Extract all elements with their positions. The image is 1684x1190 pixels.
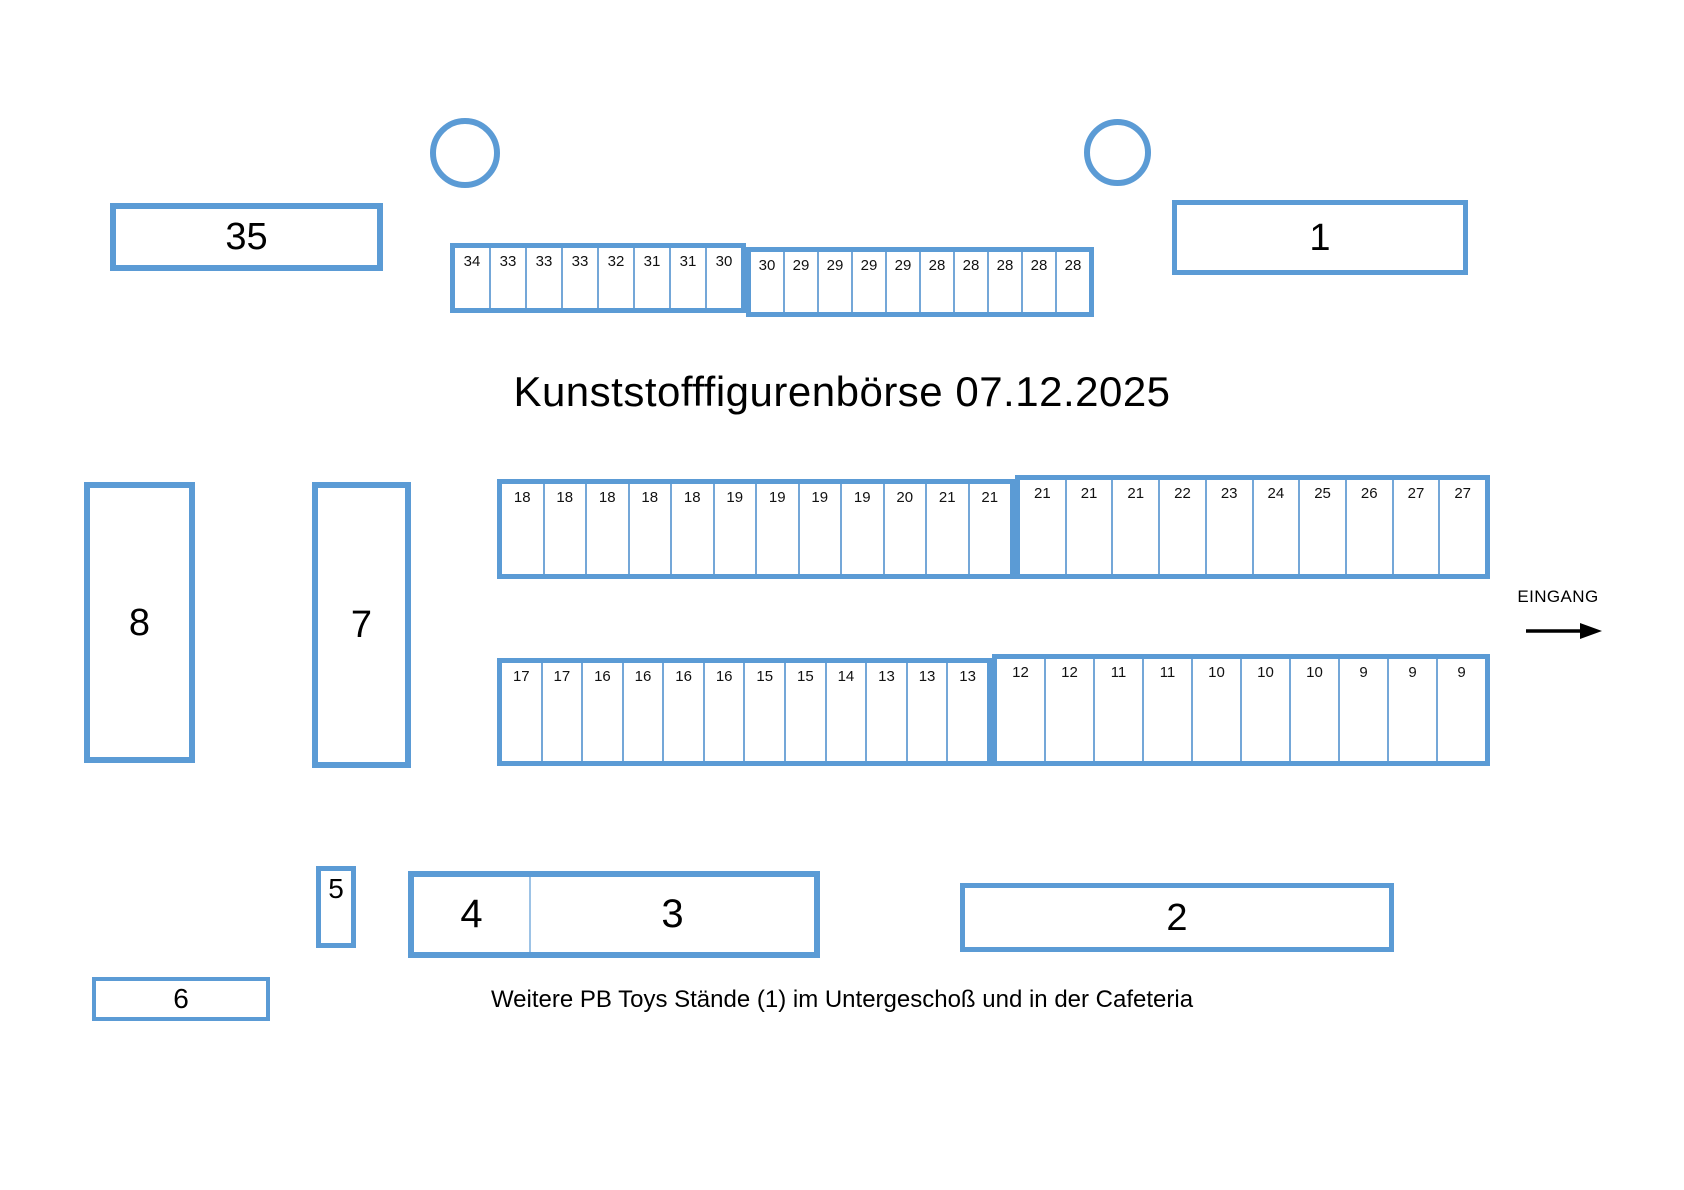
stand-row-top-group-2: 30292929292828282828 [746,247,1094,317]
stand-cell-33: 33 [491,248,527,308]
stand-cell-17: 17 [543,663,584,761]
booth-5-label: 5 [328,871,344,903]
stand-cell-28: 28 [989,252,1023,312]
booth-4-3: 4 3 [408,871,820,958]
booth-4-label: 4 [460,892,482,937]
booth-7: 7 [312,482,411,768]
stand-cell-10: 10 [1193,659,1242,761]
stand-cell-18: 18 [545,484,588,574]
stand-cell-29: 29 [785,252,819,312]
booth-35: 35 [110,203,383,271]
stand-cell-33: 33 [527,248,563,308]
booth-2-label: 2 [1166,899,1187,937]
stand-cell-28: 28 [1023,252,1057,312]
booth-2: 2 [960,883,1394,952]
booth-3-label: 3 [661,892,683,937]
stand-cell-22: 22 [1160,480,1207,574]
stand-row-upper-group-2: 21212122232425262727 [1015,475,1490,579]
booth-8-label: 8 [129,604,150,642]
stand-cell-30: 30 [751,252,785,312]
stand-cell-28: 28 [955,252,989,312]
stand-row-upper-group-1: 181818181819191919202121 [497,479,1015,579]
stand-cell-21: 21 [1067,480,1114,574]
stand-cell-27: 27 [1440,480,1485,574]
stand-cell-20: 20 [885,484,928,574]
stand-cell-9: 9 [1340,659,1389,761]
stand-cell-21: 21 [1020,480,1067,574]
stand-cell-12: 12 [1046,659,1095,761]
stand-cell-34: 34 [455,248,491,308]
stand-cell-25: 25 [1300,480,1347,574]
entrance-arrow-icon [1524,617,1604,645]
stand-cell-21: 21 [927,484,970,574]
stand-cell-14: 14 [827,663,868,761]
stand-cell-18: 18 [587,484,630,574]
stand-cell-32: 32 [599,248,635,308]
booth-4: 4 [414,877,531,952]
stand-cell-13: 13 [948,663,987,761]
stand-cell-33: 33 [563,248,599,308]
stand-cell-18: 18 [672,484,715,574]
stand-cell-27: 27 [1394,480,1441,574]
booth-35-label: 35 [225,218,267,256]
booth-8: 8 [84,482,195,763]
stand-cell-31: 31 [635,248,671,308]
stand-row-lower-group-1: 171716161616151514131313 [497,658,992,766]
floor-plan-canvas: 35 1 3433333332313130 302929292928282828… [0,0,1684,1190]
stand-cell-19: 19 [715,484,758,574]
stand-cell-23: 23 [1207,480,1254,574]
stand-cell-31: 31 [671,248,707,308]
stand-cell-21: 21 [1113,480,1160,574]
stand-cell-18: 18 [630,484,673,574]
column-circle-left-icon [430,118,500,188]
stand-cell-29: 29 [853,252,887,312]
page-title: Kunststofffigurenbörse 07.12.2025 [0,368,1684,416]
stand-cell-16: 16 [624,663,665,761]
stand-cell-16: 16 [583,663,624,761]
stand-cell-13: 13 [908,663,949,761]
stand-cell-28: 28 [921,252,955,312]
stand-cell-16: 16 [705,663,746,761]
stand-cell-16: 16 [664,663,705,761]
footer-note: Weitere PB Toys Stände (1) im Untergesch… [0,986,1684,1014]
stand-cell-19: 19 [800,484,843,574]
stand-cell-17: 17 [502,663,543,761]
stand-cell-30: 30 [707,248,741,308]
stand-cell-19: 19 [757,484,800,574]
stand-cell-11: 11 [1095,659,1144,761]
stand-cell-9: 9 [1389,659,1438,761]
stand-cell-21: 21 [970,484,1011,574]
booth-1-label: 1 [1309,219,1330,257]
booth-1: 1 [1172,200,1468,275]
stand-cell-19: 19 [842,484,885,574]
stand-cell-10: 10 [1242,659,1291,761]
booth-5: 5 [316,866,356,948]
stand-cell-18: 18 [502,484,545,574]
column-circle-right-icon [1084,119,1151,186]
stand-cell-28: 28 [1057,252,1089,312]
stand-cell-15: 15 [745,663,786,761]
entrance-label: EINGANG [1498,587,1618,607]
booth-3: 3 [531,877,814,952]
stand-cell-26: 26 [1347,480,1394,574]
stand-cell-10: 10 [1291,659,1340,761]
stand-cell-13: 13 [867,663,908,761]
stand-row-top-group-1: 3433333332313130 [450,243,746,313]
stand-cell-12: 12 [997,659,1046,761]
booth-7-label: 7 [351,606,372,644]
stand-cell-29: 29 [819,252,853,312]
stand-cell-24: 24 [1254,480,1301,574]
stand-row-lower-group-2: 12121111101010999 [992,654,1490,766]
stand-cell-11: 11 [1144,659,1193,761]
stand-cell-15: 15 [786,663,827,761]
stand-cell-9: 9 [1438,659,1485,761]
stand-cell-29: 29 [887,252,921,312]
